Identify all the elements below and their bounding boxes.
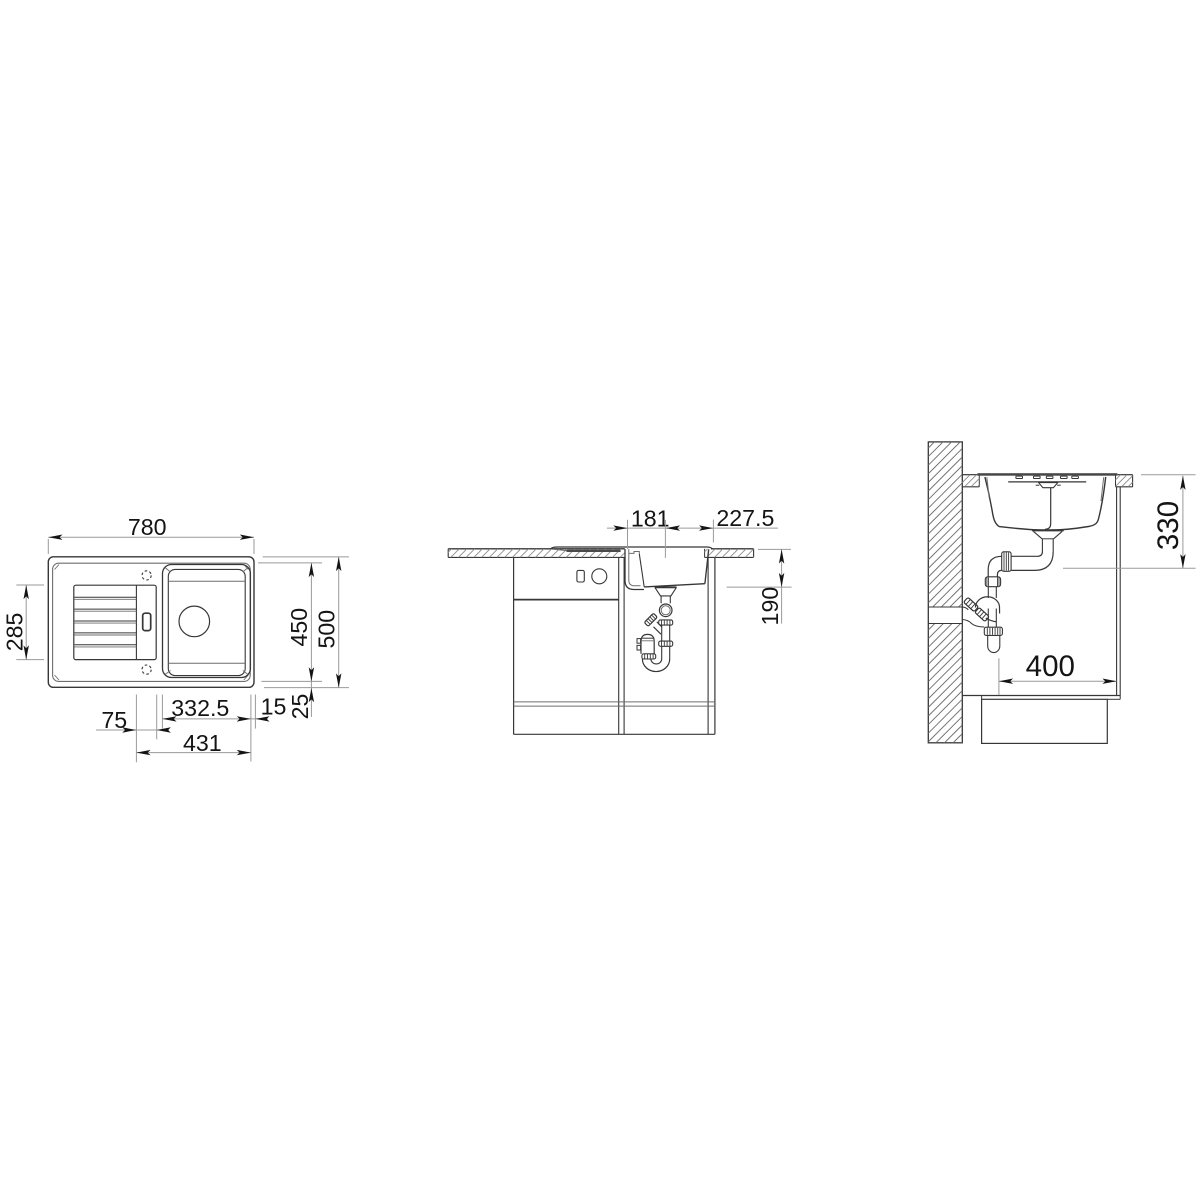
svg-text:330: 330 — [1152, 501, 1185, 550]
svg-text:450: 450 — [286, 608, 312, 647]
svg-text:285: 285 — [1, 613, 27, 652]
svg-text:190: 190 — [757, 587, 783, 626]
svg-text:332.5: 332.5 — [171, 695, 229, 721]
svg-text:75: 75 — [101, 707, 127, 733]
svg-text:780: 780 — [128, 514, 167, 540]
svg-text:181: 181 — [631, 505, 670, 531]
svg-text:500: 500 — [314, 610, 340, 649]
svg-text:227.5: 227.5 — [716, 505, 774, 531]
svg-text:400: 400 — [1026, 650, 1075, 683]
svg-text:25: 25 — [287, 694, 313, 720]
svg-text:15: 15 — [261, 693, 287, 719]
